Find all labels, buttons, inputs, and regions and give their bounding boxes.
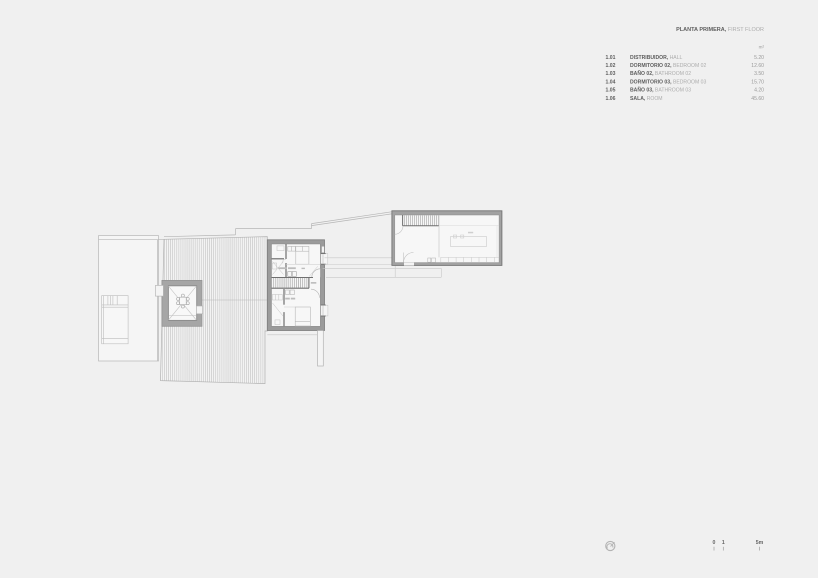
svg-text:0: 0	[713, 540, 716, 546]
svg-text:SALA, ROOM: SALA, ROOM	[630, 96, 663, 102]
svg-text:PLANTA PRIMERA, FIRST FLOOR: PLANTA PRIMERA, FIRST FLOOR	[676, 27, 764, 33]
svg-text:5.20: 5.20	[754, 55, 764, 61]
svg-text:DISTRIBUIDOR, HALL: DISTRIBUIDOR, HALL	[630, 55, 683, 61]
svg-text:1.03: 1.03	[606, 71, 616, 77]
svg-text:1: 1	[722, 540, 725, 546]
svg-text:3.50: 3.50	[754, 71, 764, 77]
svg-text:1.01: 1.01	[606, 55, 616, 61]
svg-text:15.70: 15.70	[751, 79, 764, 85]
svg-text:DORMITORIO 02, BEDROOM 02: DORMITORIO 02, BEDROOM 02	[630, 63, 707, 69]
svg-text:45.60: 45.60	[751, 96, 764, 102]
svg-text:DORMITORIO 03, BEDROOM 03: DORMITORIO 03, BEDROOM 03	[630, 79, 707, 85]
svg-text:BAÑO 02, BATHROOM 02: BAÑO 02, BATHROOM 02	[630, 70, 691, 77]
svg-text:4.20: 4.20	[754, 88, 764, 94]
svg-text:1.06: 1.06	[606, 96, 616, 102]
svg-text:1.04: 1.04	[606, 79, 616, 85]
svg-text:1.02: 1.02	[606, 63, 616, 69]
svg-text:5m: 5m	[756, 540, 764, 546]
svg-text:12.60: 12.60	[751, 63, 764, 69]
svg-text:1.05: 1.05	[606, 88, 616, 94]
svg-text:BAÑO 03, BATHROOM 03: BAÑO 03, BATHROOM 03	[630, 87, 691, 94]
svg-text:m²: m²	[759, 44, 765, 49]
